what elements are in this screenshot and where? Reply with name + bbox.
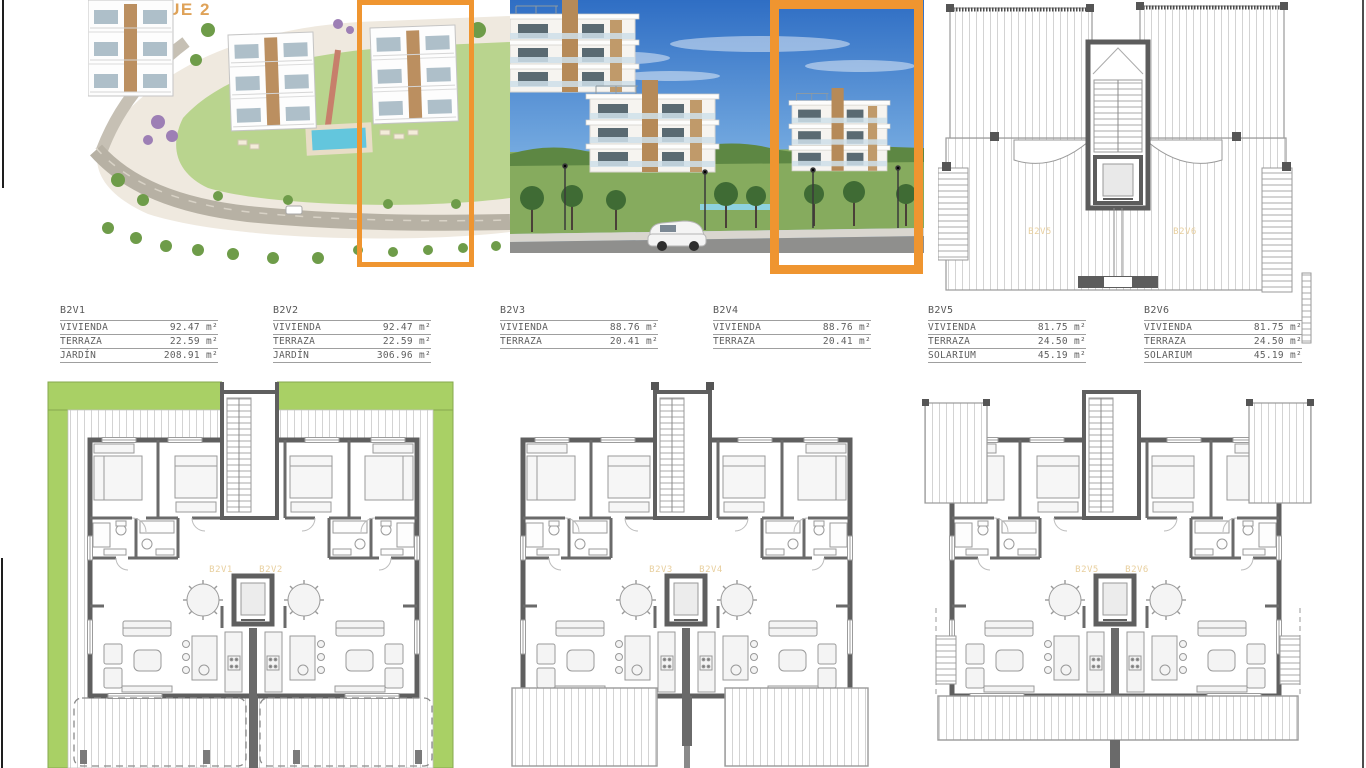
plan-unit-label: B2V4 — [699, 565, 723, 575]
table-row: VIVIENDA81.75 m² — [1144, 321, 1302, 335]
table-row: VIVIENDA92.47 m² — [273, 321, 431, 335]
table-row: TERRAZA20.41 m² — [713, 335, 871, 349]
roof-unit-label: B2V6 — [1173, 227, 1197, 237]
table-row: VIVIENDA92.47 m² — [60, 321, 218, 335]
highlight-rectangle-aerial — [357, 0, 474, 267]
roof-plan: B2V5 B2V6 — [938, 2, 1366, 348]
table-row: SOLARIUM45.19 m² — [928, 349, 1086, 363]
brochure-page: BLOQUE 2 — [0, 0, 1366, 768]
apartment-building — [510, 0, 639, 92]
car — [286, 206, 302, 214]
roof-unit-label: B2V5 — [1028, 227, 1052, 237]
area-table-b2v3: B2V3 VIVIENDA88.76 m² TERRAZA20.41 m² — [500, 305, 658, 349]
table-row: TERRAZA20.41 m² — [500, 335, 658, 349]
area-table-b2v4: B2V4 VIVIENDA88.76 m² TERRAZA20.41 m² — [713, 305, 871, 349]
area-table-b2v5: B2V5 VIVIENDA81.75 m² TERRAZA24.50 m² SO… — [928, 305, 1086, 363]
plan-unit-label: B2V2 — [259, 565, 283, 575]
floor-plan-ground: B2V1 B2V2 — [46, 378, 470, 768]
table-row: VIVIENDA81.75 m² — [928, 321, 1086, 335]
plan-unit-label: B2V3 — [649, 565, 673, 575]
highlight-rectangle-street — [770, 0, 923, 274]
plan-unit-label: B2V5 — [1075, 565, 1099, 575]
unit-code: B2V5 — [928, 305, 1086, 320]
table-row: TERRAZA22.59 m² — [273, 335, 431, 349]
table-row: TERRAZA24.50 m² — [928, 335, 1086, 349]
table-row: SOLARIUM45.19 m² — [1144, 349, 1302, 363]
unit-code: B2V2 — [273, 305, 431, 320]
table-row: VIVIENDA88.76 m² — [713, 321, 871, 335]
apartment-building — [88, 0, 173, 96]
floor-plan-second: B2V5 B2V6 — [922, 378, 1366, 768]
area-table-b2v2: B2V2 VIVIENDA92.47 m² TERRAZA22.59 m² JA… — [273, 305, 431, 363]
table-row: JARDÍN208.91 m² — [60, 349, 218, 363]
car — [648, 221, 706, 251]
table-row: TERRAZA24.50 m² — [1144, 335, 1302, 349]
unit-code: B2V1 — [60, 305, 218, 320]
table-row: JARDÍN306.96 m² — [273, 349, 431, 363]
page-edge-line — [2, 0, 4, 188]
unit-code: B2V4 — [713, 305, 871, 320]
unit-code: B2V6 — [1144, 305, 1302, 320]
floor-plan-first: B2V3 B2V4 — [505, 378, 907, 768]
table-row: VIVIENDA88.76 m² — [500, 321, 658, 335]
unit-code: B2V3 — [500, 305, 658, 320]
area-table-b2v6: B2V6 VIVIENDA81.75 m² TERRAZA24.50 m² SO… — [1144, 305, 1302, 363]
plan-unit-label: B2V6 — [1125, 565, 1149, 575]
plan-unit-label: B2V1 — [209, 565, 233, 575]
area-table-b2v1: B2V1 VIVIENDA92.47 m² TERRAZA22.59 m² JA… — [60, 305, 218, 363]
table-row: TERRAZA22.59 m² — [60, 335, 218, 349]
page-edge-line — [1, 558, 3, 768]
